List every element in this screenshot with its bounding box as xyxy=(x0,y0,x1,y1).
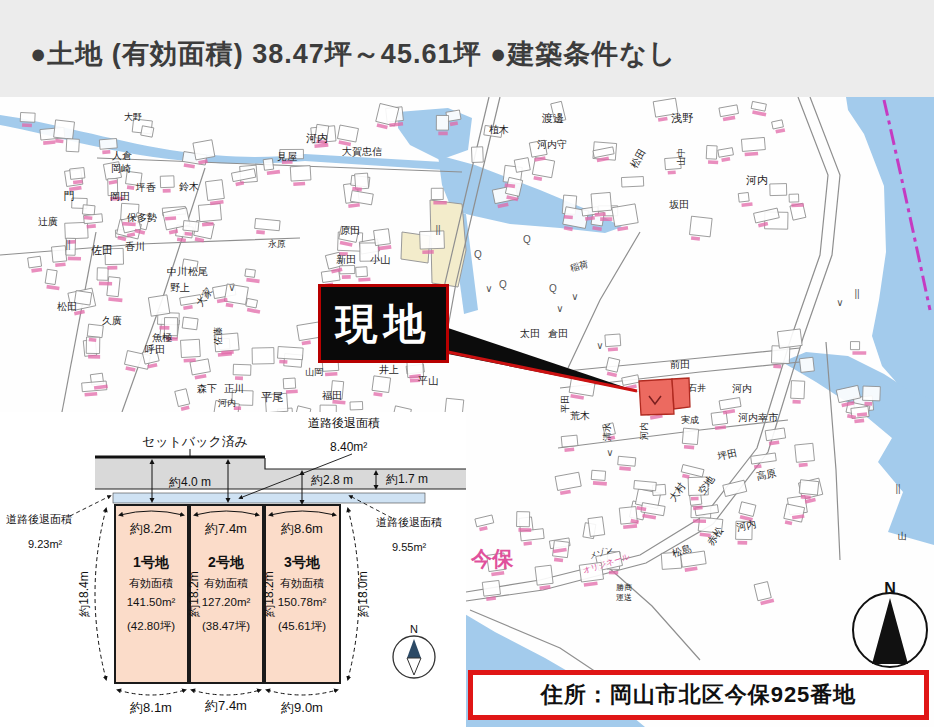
map-label: 坪香 xyxy=(135,182,156,193)
diagram-compass: N xyxy=(393,623,435,678)
map-label: 中川 xyxy=(167,266,187,277)
retreat-top-label: 道路後退面積 xyxy=(308,416,380,430)
lot-1-name: 1号地 xyxy=(133,554,169,570)
map-parcel-number-mark xyxy=(99,282,112,286)
map-building xyxy=(252,348,274,364)
map-building xyxy=(863,386,881,401)
map-building xyxy=(514,158,530,173)
map-parcel-number-mark xyxy=(693,519,706,523)
map-symbol: ∨ xyxy=(485,283,492,294)
lot-3-top-width: 約8.6m xyxy=(280,521,323,536)
map-building xyxy=(180,339,200,357)
retreat-left-label: 道路後退面積 xyxy=(6,513,72,525)
map-symbol: ∨ xyxy=(571,291,578,302)
flyer-page: 大野人倉岡崎坪香岡田保多勢門辻廣佐田香川中川松尾鈴木見屋野上大家松田久廣魚極呼田… xyxy=(0,0,934,727)
map-building xyxy=(706,145,717,159)
map-label: 人倉 xyxy=(112,150,132,161)
map-symbol: ∨ xyxy=(556,303,563,314)
map-parcel-number-mark xyxy=(691,497,699,501)
map-building xyxy=(148,295,169,316)
lot-diagram: セットバック済み 道路後退面積 8.40m² 約4.0 m 約2.8 m 約1.… xyxy=(0,412,466,727)
depth-left: 約18.4m xyxy=(77,571,91,617)
map-building xyxy=(738,192,749,202)
map-label: 魚極 xyxy=(152,332,172,343)
map-label: 今保 xyxy=(470,547,514,570)
map-building xyxy=(28,256,42,268)
map-building xyxy=(45,269,57,284)
map-label: 運送 xyxy=(616,593,632,602)
map-label: 佐藤 xyxy=(213,327,223,346)
map-building xyxy=(356,267,368,277)
map-label: 野上 xyxy=(170,282,190,293)
map-parcel-number-mark xyxy=(668,170,676,174)
lot-3-tsubo: (45.61坪) xyxy=(278,620,326,632)
map-symbol: || xyxy=(895,483,900,494)
map-building xyxy=(634,480,657,490)
lot-diagram-panel: セットバック済み 道路後退面積 8.40m² 約4.0 m 約2.8 m 約1.… xyxy=(0,412,466,727)
map-symbol: Q xyxy=(523,234,531,245)
map-label: 河内 xyxy=(306,132,328,144)
map-symbol: Q xyxy=(499,279,507,290)
map-building xyxy=(682,428,698,444)
map-parcel-number-mark xyxy=(102,150,110,154)
map-building xyxy=(283,378,295,389)
retreat-right-area: 9.55m² xyxy=(392,541,427,553)
map-parcel-number-mark xyxy=(864,402,872,406)
map-symbol: ∨ xyxy=(606,447,613,458)
address-bar: 住所：岡山市北区今保925番地 xyxy=(468,670,929,720)
map-building xyxy=(372,376,391,393)
map-symbol: || xyxy=(435,224,440,235)
map-building xyxy=(20,112,35,122)
map-symbol: Q xyxy=(549,283,557,294)
map-label: 河内 xyxy=(218,398,236,408)
map-building xyxy=(82,205,95,215)
map-label: 実成 xyxy=(681,415,699,425)
map-building xyxy=(618,456,636,466)
road-width-17m: 約1.7 m xyxy=(385,472,428,486)
map-building xyxy=(374,229,391,246)
map-parcel-number-mark xyxy=(159,326,169,330)
map-label: 河内幸市 xyxy=(738,412,779,423)
lot-3-name: 3号地 xyxy=(284,554,320,570)
map-building xyxy=(591,192,612,211)
map-symbol: ∨ xyxy=(596,340,603,351)
map-parcel-number-mark xyxy=(107,266,117,270)
retreat-left-area: 9.23m² xyxy=(28,538,63,550)
lot-bottom-width-arrows xyxy=(118,690,337,695)
map-building xyxy=(66,139,79,152)
map-building xyxy=(517,512,530,527)
map-label: 山中 xyxy=(676,148,686,166)
map-symbol: Q xyxy=(474,249,482,260)
map-building xyxy=(535,565,553,585)
map-label: 荒木 xyxy=(570,410,590,421)
map-label: 河内 xyxy=(732,383,752,394)
map-building xyxy=(65,222,88,239)
page-title: ●土地 (有効面積) 38.47坪～45.61坪 ●建築条件なし xyxy=(0,0,934,72)
map-symbol: ∨ xyxy=(836,297,843,308)
map-label: 久廣 xyxy=(102,315,122,326)
lot-3-bottom-width: 約9.0m xyxy=(280,700,323,715)
map-label: 太田 xyxy=(520,328,540,339)
map-label: 坂田 xyxy=(669,199,689,210)
map-parcel-number-mark xyxy=(358,278,370,282)
map-label: 勝商 xyxy=(616,583,632,592)
map-label: 佐田 xyxy=(91,244,113,256)
setback-note: セットバック済み xyxy=(142,434,248,449)
lot-2-top-width: 約7.4m xyxy=(204,521,247,536)
map-parcel-number-mark xyxy=(608,347,618,351)
map-building xyxy=(182,317,198,330)
map-label: 山岡 xyxy=(305,367,323,377)
map-building xyxy=(74,291,91,305)
lot-2-area: 127.20m² xyxy=(202,596,251,608)
map-building xyxy=(355,173,369,189)
road-width-4m: 約4.0 m xyxy=(168,475,211,489)
map-label: 倉田 xyxy=(548,328,568,339)
map-parcel-number-mark xyxy=(791,203,803,207)
map-building xyxy=(54,120,75,139)
map-label: 見屋 xyxy=(277,151,297,162)
map-label: 松田 xyxy=(57,301,77,312)
map-parcel-number-mark xyxy=(184,232,192,236)
map-building xyxy=(193,140,215,160)
map-label: 原田 xyxy=(340,225,360,236)
map-building xyxy=(777,329,802,348)
map-building xyxy=(770,184,787,196)
map-parcel-number-mark xyxy=(68,257,81,261)
map-label: 平尾 xyxy=(261,391,283,403)
map-building xyxy=(436,115,448,130)
map-label: 門 xyxy=(64,190,75,202)
map-building xyxy=(99,138,117,149)
map-building xyxy=(278,347,304,360)
map-building xyxy=(141,126,154,137)
lot-2-bottom-width: 約7.4m xyxy=(204,698,247,713)
map-building xyxy=(420,231,445,249)
lot-2-tsubo: (38.47坪) xyxy=(202,620,250,632)
map-parcel-number-mark xyxy=(279,360,287,364)
map-building xyxy=(376,103,399,125)
map-symbol: || xyxy=(65,239,70,250)
map-building xyxy=(245,269,256,278)
map-label: 河内守 xyxy=(537,139,567,150)
map-parcel-number-mark xyxy=(433,201,446,205)
map-label: 平山 xyxy=(418,375,438,386)
map-building xyxy=(255,218,280,230)
map-parcel-number-mark xyxy=(518,528,531,532)
map-parcel-number-mark xyxy=(792,400,800,404)
map-building xyxy=(350,402,363,410)
map-building xyxy=(799,480,819,495)
map-parcel-number-mark xyxy=(342,275,351,279)
map-building xyxy=(482,580,500,596)
map-label: 森下 xyxy=(197,383,217,394)
map-building xyxy=(605,334,621,347)
map-parcel-number-mark xyxy=(708,160,718,164)
diagram-compass-n: N xyxy=(410,623,418,635)
setback-strip xyxy=(113,493,425,503)
lot-3-eff-label: 有効面積 xyxy=(280,577,324,589)
map-building xyxy=(795,443,815,462)
map-building xyxy=(87,324,103,338)
map-label: 松尾 xyxy=(188,266,208,277)
map-building xyxy=(337,125,358,142)
map-label: 大野 xyxy=(124,112,142,122)
map-parcel-number-mark xyxy=(22,123,32,127)
lot-1-eff-label: 有効面積 xyxy=(129,577,173,589)
map-compass-n: N xyxy=(884,580,896,597)
depth-mid1: 約18.2m xyxy=(187,571,201,617)
map-parcel-number-mark xyxy=(235,376,243,380)
map-building xyxy=(198,204,221,222)
map-parcel-number-mark xyxy=(738,541,748,545)
map-parcel-number-mark xyxy=(600,217,612,221)
lot-3-area: 150.78m² xyxy=(278,596,327,608)
map-parcel-number-mark xyxy=(286,389,298,393)
map-label: 清水 xyxy=(602,423,612,442)
map-label: 鈴木 xyxy=(179,181,199,192)
map-building xyxy=(789,194,799,202)
lot-2-eff-label: 有効面積 xyxy=(204,577,248,589)
map-parcel-number-mark xyxy=(773,365,781,369)
site-callout-label: 現地 xyxy=(336,303,432,345)
map-building xyxy=(263,159,273,171)
map-label: 植木 xyxy=(489,124,509,135)
map-label: 大賀忠信 xyxy=(342,146,382,157)
map-building xyxy=(290,166,311,181)
map-building xyxy=(689,216,712,237)
retreat-right-label: 道路後退面積 xyxy=(376,516,442,528)
map-label: 永原 xyxy=(268,239,286,249)
map-parcel-number-mark xyxy=(564,215,573,219)
map-label: 河内 xyxy=(746,174,768,186)
map-building xyxy=(850,342,859,350)
map-parcel-number-mark xyxy=(163,189,171,193)
map-label: 前田 xyxy=(670,359,690,370)
map-building xyxy=(160,176,174,188)
map-label: 呼田 xyxy=(145,344,165,355)
map-label: 渡邊 xyxy=(541,112,564,124)
map-building xyxy=(612,204,638,227)
map-building xyxy=(97,268,108,281)
map-building xyxy=(233,364,251,375)
map-building xyxy=(591,470,605,480)
depth-right: 約18.0m xyxy=(356,571,370,617)
map-parcel-number-mark xyxy=(88,355,100,359)
lot-2-name: 2号地 xyxy=(208,554,244,570)
map-parcel-number-mark xyxy=(325,372,337,376)
map-building xyxy=(70,168,85,180)
map-parcel-number-mark xyxy=(609,571,618,575)
retreat-top-area: 8.40m² xyxy=(330,440,367,454)
map-label: 河内 xyxy=(639,422,649,440)
map-label: 浅野 xyxy=(671,112,693,124)
retreat-left-leader xyxy=(70,496,110,516)
map-building xyxy=(588,517,605,537)
lot-1-tsubo: (42.80坪) xyxy=(127,620,175,632)
map-label: 辻廣 xyxy=(38,216,58,227)
map-building xyxy=(606,357,620,372)
map-label: 小山 xyxy=(370,254,390,265)
map-building xyxy=(784,504,805,522)
map-building xyxy=(107,277,120,297)
map-building xyxy=(183,221,199,232)
map-building xyxy=(471,147,483,163)
header-band: ●土地 (有効面積) 38.47坪～45.61坪 ●建築条件なし xyxy=(0,0,934,97)
depth-mid2: 約18.2m xyxy=(262,571,276,617)
map-label: 香川 xyxy=(125,241,145,252)
map-label: 正川 xyxy=(224,383,244,394)
map-building xyxy=(741,137,765,151)
map-building xyxy=(431,188,443,199)
site-callout: 現地 xyxy=(318,284,449,363)
map-label: 新田 xyxy=(336,254,356,265)
map-parcel-number-mark xyxy=(852,351,866,355)
map-building xyxy=(621,177,643,187)
map-label: 岡田 xyxy=(110,191,130,202)
road-top-edge xyxy=(265,458,466,469)
map-label: 福田 xyxy=(322,390,342,401)
map-parcel-number-mark xyxy=(422,250,434,254)
lot-1-top-width: 約8.2m xyxy=(129,521,172,536)
map-building xyxy=(791,381,805,399)
map-building xyxy=(561,435,578,447)
map-building xyxy=(246,298,258,308)
lot-1-bottom-width: 約8.1m xyxy=(129,700,172,715)
lot-1-area: 141.50m² xyxy=(127,596,176,608)
map-label: 平田 xyxy=(560,395,570,413)
map-parcel-number-mark xyxy=(293,182,305,186)
road-width-28m: 約2.8 m xyxy=(310,473,353,487)
map-parcel-number-mark xyxy=(438,132,447,136)
map-symbol: || xyxy=(854,288,859,299)
map-label: 山 xyxy=(898,531,907,541)
map-label: 岡崎 xyxy=(111,163,131,174)
map-parcel-number-mark xyxy=(184,358,196,362)
map-label: 井上 xyxy=(379,364,399,375)
map-label: 保多勢 xyxy=(126,212,157,223)
address-text: 住所：岡山市北区今保925番地 xyxy=(541,680,857,710)
map-building xyxy=(800,357,815,372)
map-building xyxy=(205,180,224,201)
map-symbol: ∨ xyxy=(228,282,235,293)
